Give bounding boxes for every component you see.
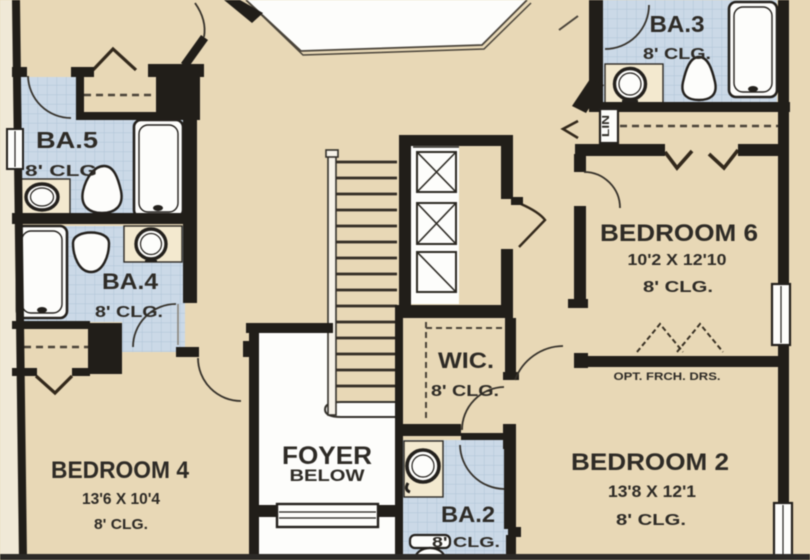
svg-text:8' CLG.: 8' CLG. bbox=[643, 279, 713, 296]
svg-text:8' CLG.: 8' CLG. bbox=[94, 516, 148, 533]
svg-text:BA.5: BA.5 bbox=[36, 127, 98, 153]
svg-text:BA.2: BA.2 bbox=[441, 502, 495, 527]
svg-text:8' CLG.: 8' CLG. bbox=[431, 383, 499, 400]
svg-text:BEDROOM 6: BEDROOM 6 bbox=[600, 220, 758, 247]
svg-text:WIC.: WIC. bbox=[438, 348, 494, 373]
svg-text:BA.4: BA.4 bbox=[102, 269, 159, 294]
svg-text:8' CLG.: 8' CLG. bbox=[95, 304, 163, 321]
svg-text:10'2 X 12'10: 10'2 X 12'10 bbox=[628, 252, 727, 269]
svg-text:BA.3: BA.3 bbox=[650, 11, 705, 37]
svg-text:8' CLG: 8' CLG bbox=[25, 163, 97, 180]
svg-text:8' CLG.: 8' CLG. bbox=[616, 512, 686, 529]
svg-text:BELOW: BELOW bbox=[290, 466, 366, 485]
svg-text:13'8 X 12'1: 13'8 X 12'1 bbox=[608, 482, 696, 501]
svg-text:13'6 X 10'4: 13'6 X 10'4 bbox=[82, 491, 160, 508]
svg-text:LIN: LIN bbox=[601, 115, 612, 137]
svg-text:OPT. FRCH. DRS.: OPT. FRCH. DRS. bbox=[614, 371, 721, 383]
svg-text:BEDROOM 4: BEDROOM 4 bbox=[51, 457, 190, 484]
svg-text:BEDROOM 2: BEDROOM 2 bbox=[571, 449, 729, 476]
svg-text:8' CLG.: 8' CLG. bbox=[432, 534, 500, 551]
svg-text:8' CLG.: 8' CLG. bbox=[643, 46, 711, 63]
